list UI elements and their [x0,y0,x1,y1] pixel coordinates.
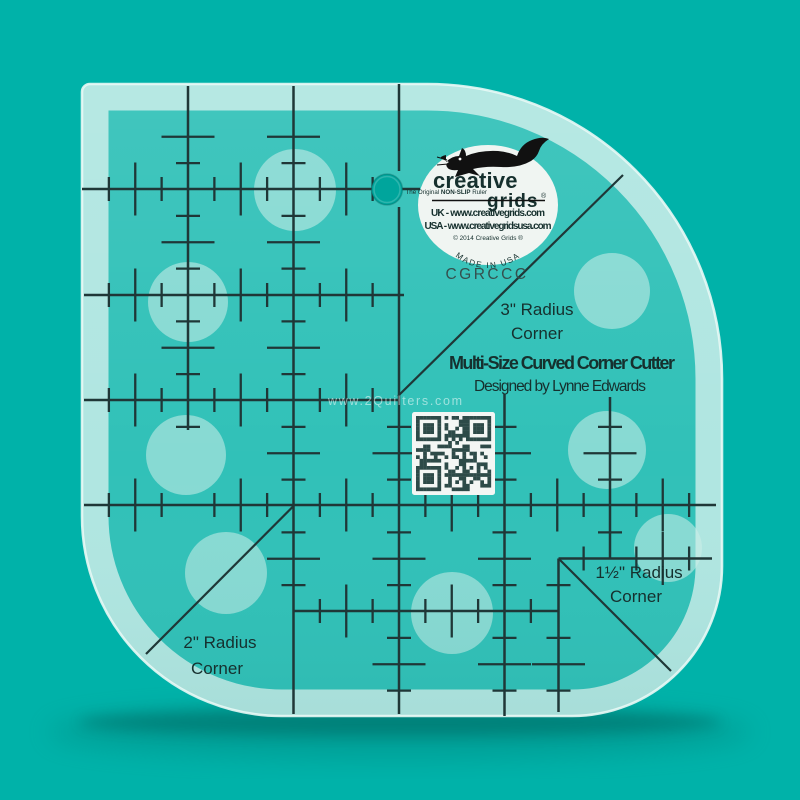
qr-module [480,423,484,427]
qr-module [473,452,477,456]
qr-module [445,434,449,438]
qr-module [423,427,427,431]
qr-module [437,416,441,420]
qr-module [445,484,449,488]
qr-module [452,470,456,474]
qr-module [466,473,470,477]
contact-usa: USA - www.creativegridsusa.com [425,221,552,232]
qr-module [480,452,484,456]
qr-module [466,430,470,434]
qr-module [459,477,463,481]
qr-module [462,430,466,434]
qr-module [423,466,427,470]
qr-module [480,445,484,449]
qr-module [459,448,463,452]
label-3in-radius-line2: Corner [511,324,563,343]
qr-module [455,455,459,459]
qr-module [487,420,491,424]
qr-module [462,473,466,477]
qr-module [423,452,427,456]
qr-module [473,430,477,434]
qr-module [480,473,484,477]
qr-module [487,430,491,434]
qr-module [480,437,484,441]
qr-module [470,437,474,441]
qr-code-icon [412,412,495,495]
qr-module [470,466,474,470]
qr-module [430,487,434,491]
qr-module [437,430,441,434]
qr-module [487,416,491,420]
qr-module [430,466,434,470]
qr-module [437,466,441,470]
qr-module [416,427,420,431]
qr-module [445,423,449,427]
qr-module [466,470,470,474]
qr-module [459,459,463,463]
qr-module [487,427,491,431]
qr-module [452,473,456,477]
qr-module [452,455,456,459]
qr-module [470,480,474,484]
qr-module [462,427,466,431]
qr-module [445,445,449,449]
qr-module [416,416,420,420]
qr-module [455,487,459,491]
tagline-prefix: The Original [405,189,440,196]
qr-module [473,477,477,481]
qr-module [448,441,452,445]
qr-module [466,420,470,424]
qr-module [420,437,424,441]
product-code: CGRCCC [445,266,528,283]
qr-module [420,466,424,470]
qr-module [430,452,434,456]
qr-module [434,452,438,456]
qr-module [441,445,445,449]
qr-module [462,434,466,438]
qr-module [427,427,431,431]
designer-credit: Designed by Lynne Edwards [474,378,646,395]
qr-module [459,473,463,477]
qr-module [434,487,438,491]
qr-module [416,423,420,427]
qr-module [448,434,452,438]
qr-module [423,459,427,463]
qr-module [448,445,452,449]
qr-module [466,434,470,438]
qr-module [420,487,424,491]
qr-module [462,452,466,456]
qr-module [480,484,484,488]
label-3in-radius-line1: 3" Radius [500,300,573,319]
qr-module [423,487,427,491]
qr-module [487,470,491,474]
qr-module [455,416,459,420]
qr-module [423,448,427,452]
qr-module [423,423,427,427]
qr-module [462,462,466,466]
qr-module [427,480,431,484]
qr-module [487,480,491,484]
qr-module [423,437,427,441]
qr-module [448,484,452,488]
qr-module [445,466,449,470]
qr-module [430,427,434,431]
qr-module [462,423,466,427]
qr-module [459,437,463,441]
qr-module [455,434,459,438]
qr-module [462,416,466,420]
qr-module [477,437,481,441]
qr-module [484,455,488,459]
qr-module [416,430,420,434]
qr-module [459,420,463,424]
qr-module [452,430,456,434]
qr-module [455,473,459,477]
qr-module [430,477,434,481]
qr-module [462,448,466,452]
qr-module [466,445,470,449]
qr-module [462,455,466,459]
qr-module [445,437,449,441]
tagline-suffix: Ruler [470,189,487,196]
qr-module [416,470,420,474]
qr-module [423,455,427,459]
qr-module [427,487,431,491]
qr-module [477,430,481,434]
tagline-bold: NON-SLIP [441,189,471,196]
qr-module [455,427,459,431]
qr-module [416,466,420,470]
qr-module [420,459,424,463]
qr-module [437,484,441,488]
qr-module [455,480,459,484]
qr-module [434,466,438,470]
qr-module [445,462,449,466]
qr-module [437,480,441,484]
qr-module [462,459,466,463]
qr-module [473,416,477,420]
qr-module [427,477,431,481]
qr-module [487,445,491,449]
qr-module [437,459,441,463]
qr-module [459,423,463,427]
qr-module [423,445,427,449]
qr-module [448,470,452,474]
qr-module [430,459,434,463]
qr-module [437,452,441,456]
qr-module [487,473,491,477]
qr-module [437,434,441,438]
qr-module [473,423,477,427]
qr-module [459,434,463,438]
qr-module [477,423,481,427]
qr-module [452,437,456,441]
qr-module [427,445,431,449]
qr-module [477,466,481,470]
qr-module [437,423,441,427]
qr-module [466,437,470,441]
qr-module [437,470,441,474]
qr-module [416,487,420,491]
qr-module [416,480,420,484]
qr-module [466,423,470,427]
qr-module [437,473,441,477]
qr-module [462,484,466,488]
qr-module [477,462,481,466]
hanging-hole [372,174,403,205]
qr-module [434,455,438,459]
qr-module [452,452,456,456]
product-title: Multi-Size Curved Corner Cutter [449,353,675,373]
qr-module [430,437,434,441]
qr-module [416,473,420,477]
qr-module [480,462,484,466]
qr-module [466,416,470,420]
qr-module [416,455,420,459]
qr-module [473,427,477,431]
brand-tagline: The Original NON-SLIP Ruler [405,189,487,196]
product-photo: creative grids ® The Original NON-SLIP R… [0,0,800,800]
qr-module [473,437,477,441]
qr-module [437,427,441,431]
qr-module [423,416,427,420]
qr-module [423,473,427,477]
qr-module [462,487,466,491]
qr-module [416,477,420,481]
qr-module [448,430,452,434]
qr-module [416,434,420,438]
qr-module [437,420,441,424]
qr-module [452,434,456,438]
qr-module [416,437,420,441]
qr-module [484,473,488,477]
qr-module [452,448,456,452]
label-2in-radius-line1: 2" Radius [183,633,256,652]
qr-module [455,441,459,445]
qr-module [445,427,449,431]
qr-module [416,484,420,488]
qr-module [448,473,452,477]
hole-opening [372,174,403,205]
qr-module [466,427,470,431]
qr-module [477,477,481,481]
qr-module [487,477,491,481]
qr-module [437,477,441,481]
label-1half-radius-line1: 1½" Radius [595,563,682,582]
qr-module [437,437,441,441]
qr-module [470,459,474,463]
qr-module [462,445,466,449]
qr-module [477,416,481,420]
qr-module [427,473,431,477]
qr-module [448,480,452,484]
qr-module [445,416,449,420]
copyright: © 2014 Creative Grids ® [453,234,523,242]
qr-module [480,480,484,484]
qr-module [484,445,488,449]
qr-module [462,470,466,474]
qr-module [487,437,491,441]
qr-module [466,487,470,491]
qr-module [487,484,491,488]
qr-module [480,430,484,434]
qr-module [477,427,481,431]
qr-module [473,473,477,477]
qr-module [423,430,427,434]
qr-module [484,437,488,441]
qr-module [430,423,434,427]
qr-module [427,437,431,441]
qr-module [462,466,466,470]
qr-module [427,459,431,463]
qr-module [484,466,488,470]
qr-module [437,445,441,449]
qr-module [434,437,438,441]
qr-module [462,480,466,484]
qr-module [423,462,427,466]
qr-module [420,462,424,466]
qr-module [427,466,431,470]
qr-module [462,477,466,481]
qr-module [487,434,491,438]
qr-module [466,459,470,463]
qr-module [427,416,431,420]
qr-module [484,484,488,488]
qr-module [430,473,434,477]
label-2in-radius-line2: Corner [191,659,243,678]
qr-module [434,459,438,463]
curved-corner-cutter-ruler: creative grids ® The Original NON-SLIP R… [0,0,800,800]
qr-module [480,416,484,420]
qr-module [434,416,438,420]
qr-module [437,487,441,491]
qr-module [445,473,449,477]
qr-module [427,430,431,434]
qr-module [427,448,431,452]
qr-module [484,416,488,420]
qr-module [430,480,434,484]
qr-module [427,423,431,427]
qr-module [445,455,449,459]
qr-module [470,452,474,456]
qr-module [455,448,459,452]
qr-module [470,416,474,420]
qr-module [430,416,434,420]
qr-module [416,420,420,424]
qr-module [416,448,420,452]
qr-module [477,473,481,477]
qr-module [473,455,477,459]
qr-module [441,452,445,456]
qr-module [484,462,488,466]
fox-eye [459,158,462,161]
qr-module [452,416,456,420]
qr-module [430,430,434,434]
qr-module [470,473,474,477]
qr-module [459,462,463,466]
qr-module [423,480,427,484]
contact-uk: UK - www.creativegrids.com [431,208,545,219]
qr-module [420,448,424,452]
registered-mark: ® [541,192,547,200]
qr-module [480,427,484,431]
qr-module [420,416,424,420]
qr-module [423,477,427,481]
qr-module [462,420,466,424]
qr-module [459,487,463,491]
qr-module [466,448,470,452]
qr-module [455,466,459,470]
qr-module [487,423,491,427]
qr-module [466,484,470,488]
qr-module [452,487,456,491]
qr-module [448,477,452,481]
label-1half-radius-line2: Corner [610,587,662,606]
qr-module [477,470,481,474]
qr-module [473,459,477,463]
